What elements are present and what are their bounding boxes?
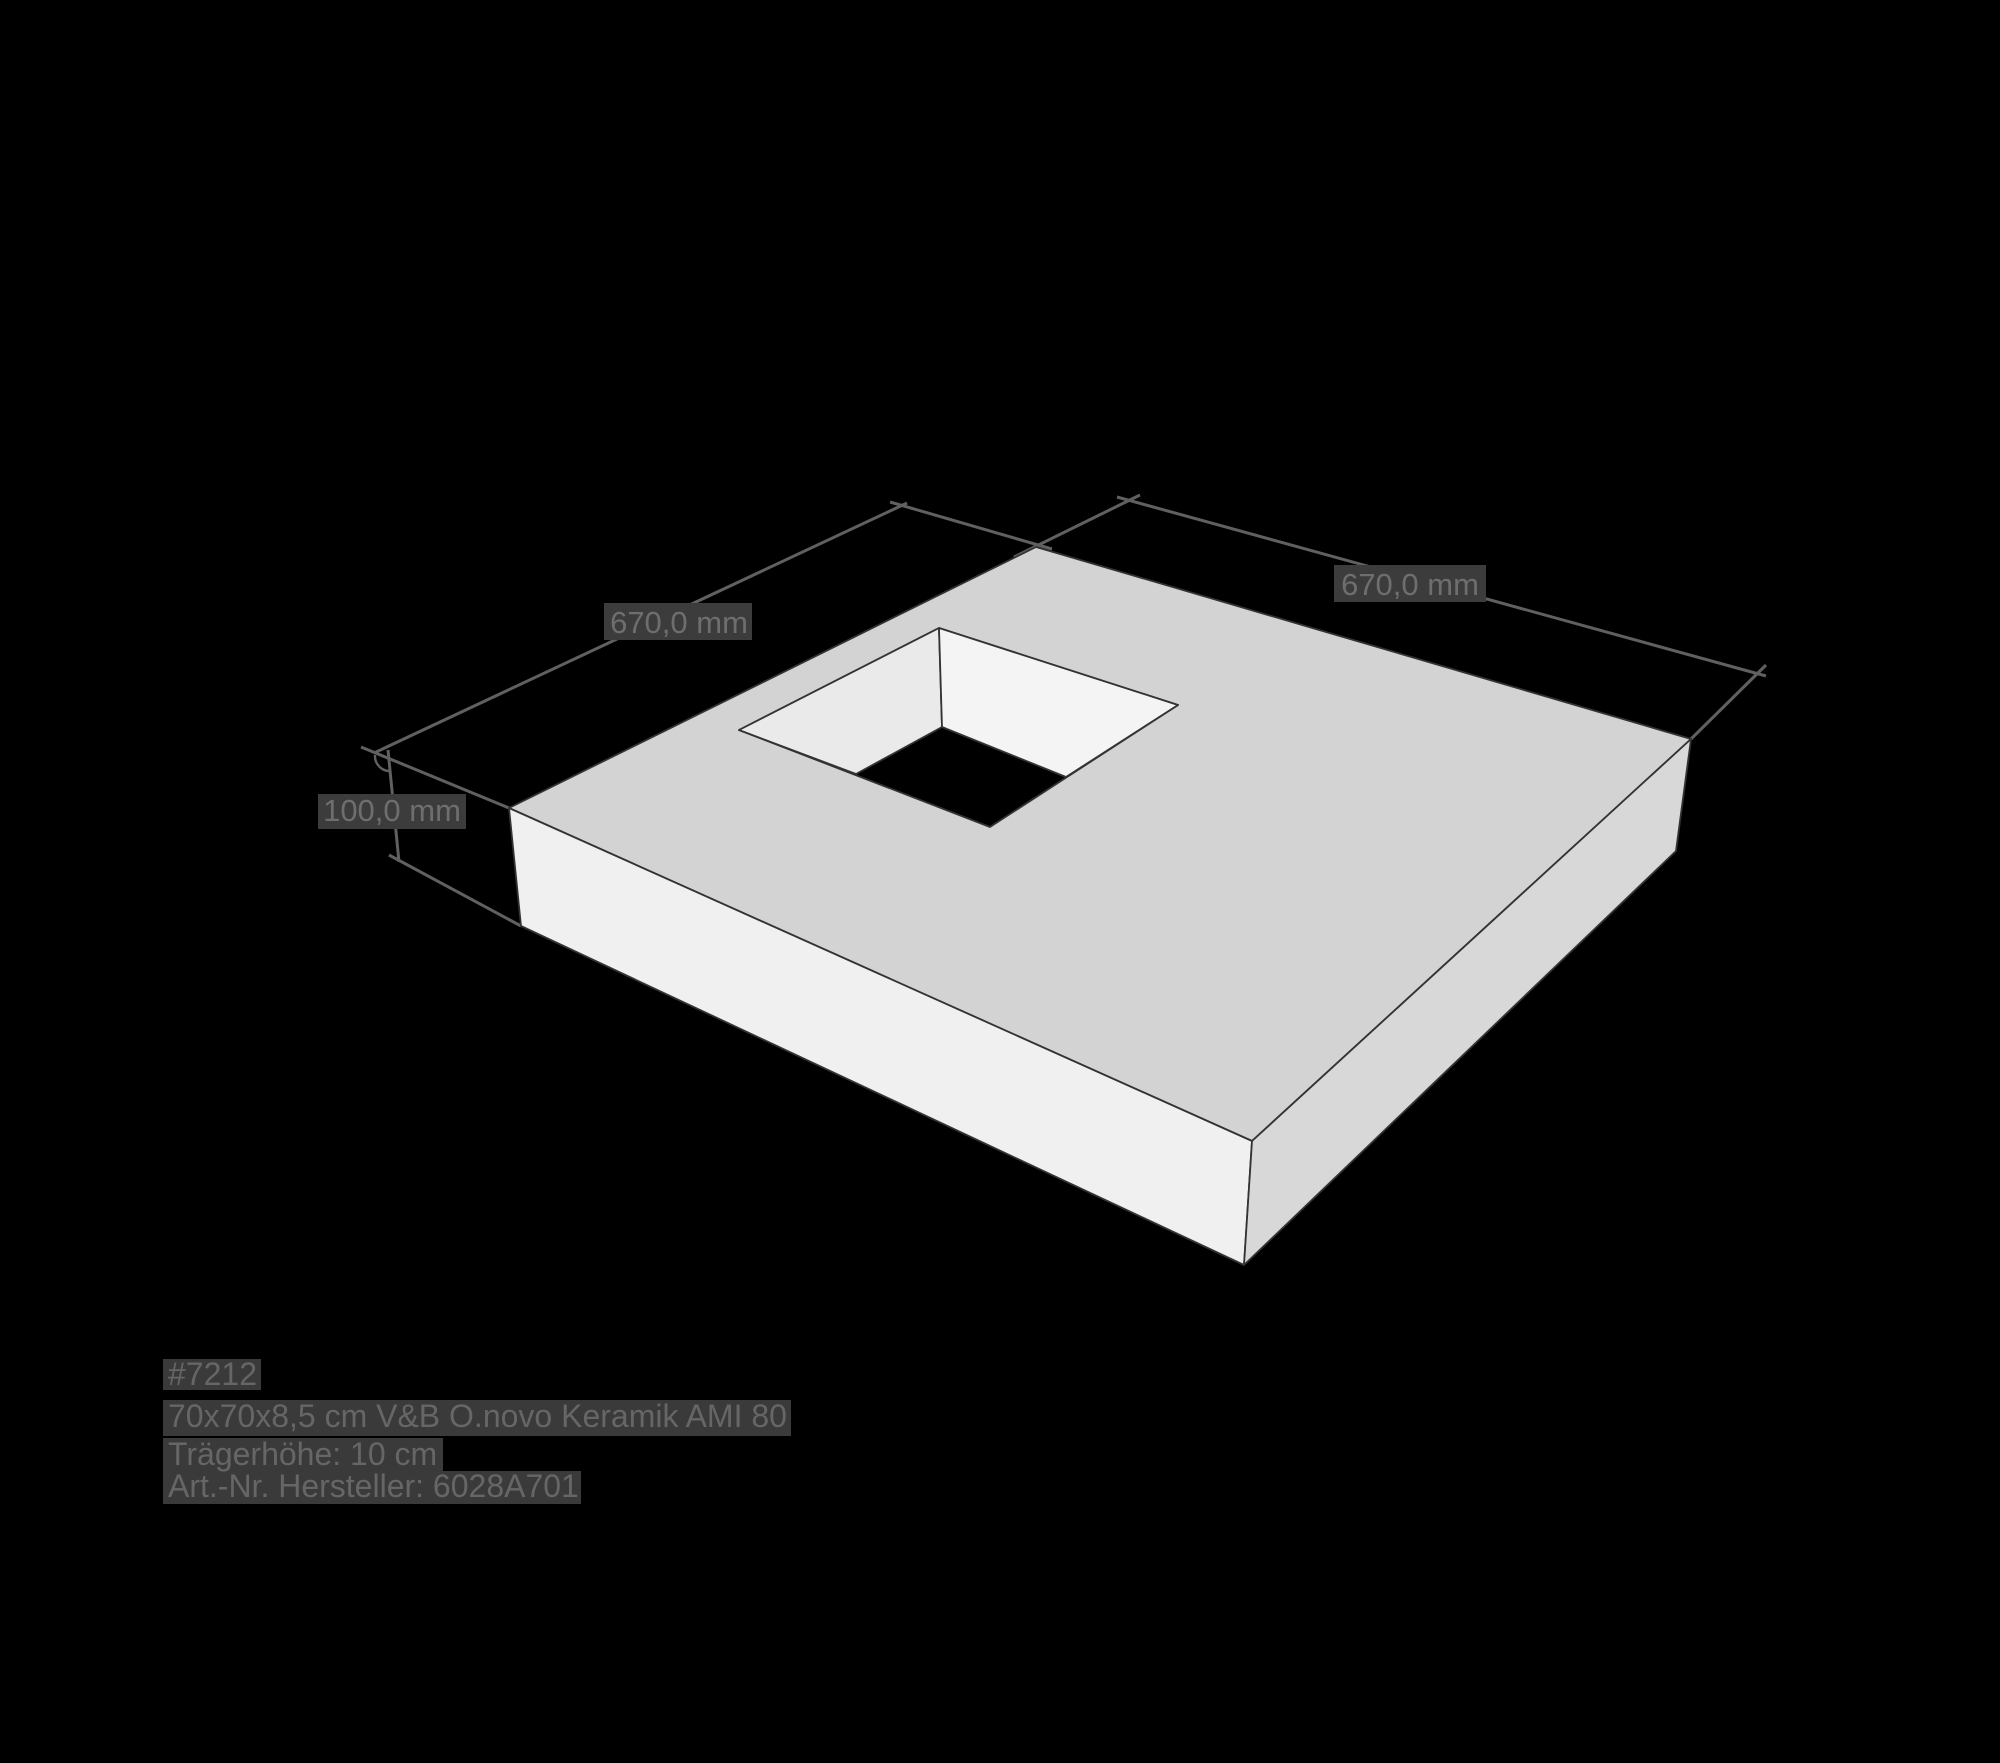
svg-text:Trägerhöhe: 10 cm: Trägerhöhe: 10 cm: [168, 1436, 437, 1472]
svg-text:670,0 mm: 670,0 mm: [1341, 567, 1479, 602]
svg-text:#7212: #7212: [168, 1356, 257, 1392]
svg-text:100,0 mm: 100,0 mm: [323, 793, 461, 828]
svg-text:70x70x8,5 cm V&B O.novo Kerami: 70x70x8,5 cm V&B O.novo Keramik AMI 80: [168, 1398, 787, 1434]
svg-text:670,0 mm: 670,0 mm: [610, 605, 748, 640]
svg-text:Art.-Nr. Hersteller: 6028A701: Art.-Nr. Hersteller: 6028A701: [168, 1468, 579, 1504]
